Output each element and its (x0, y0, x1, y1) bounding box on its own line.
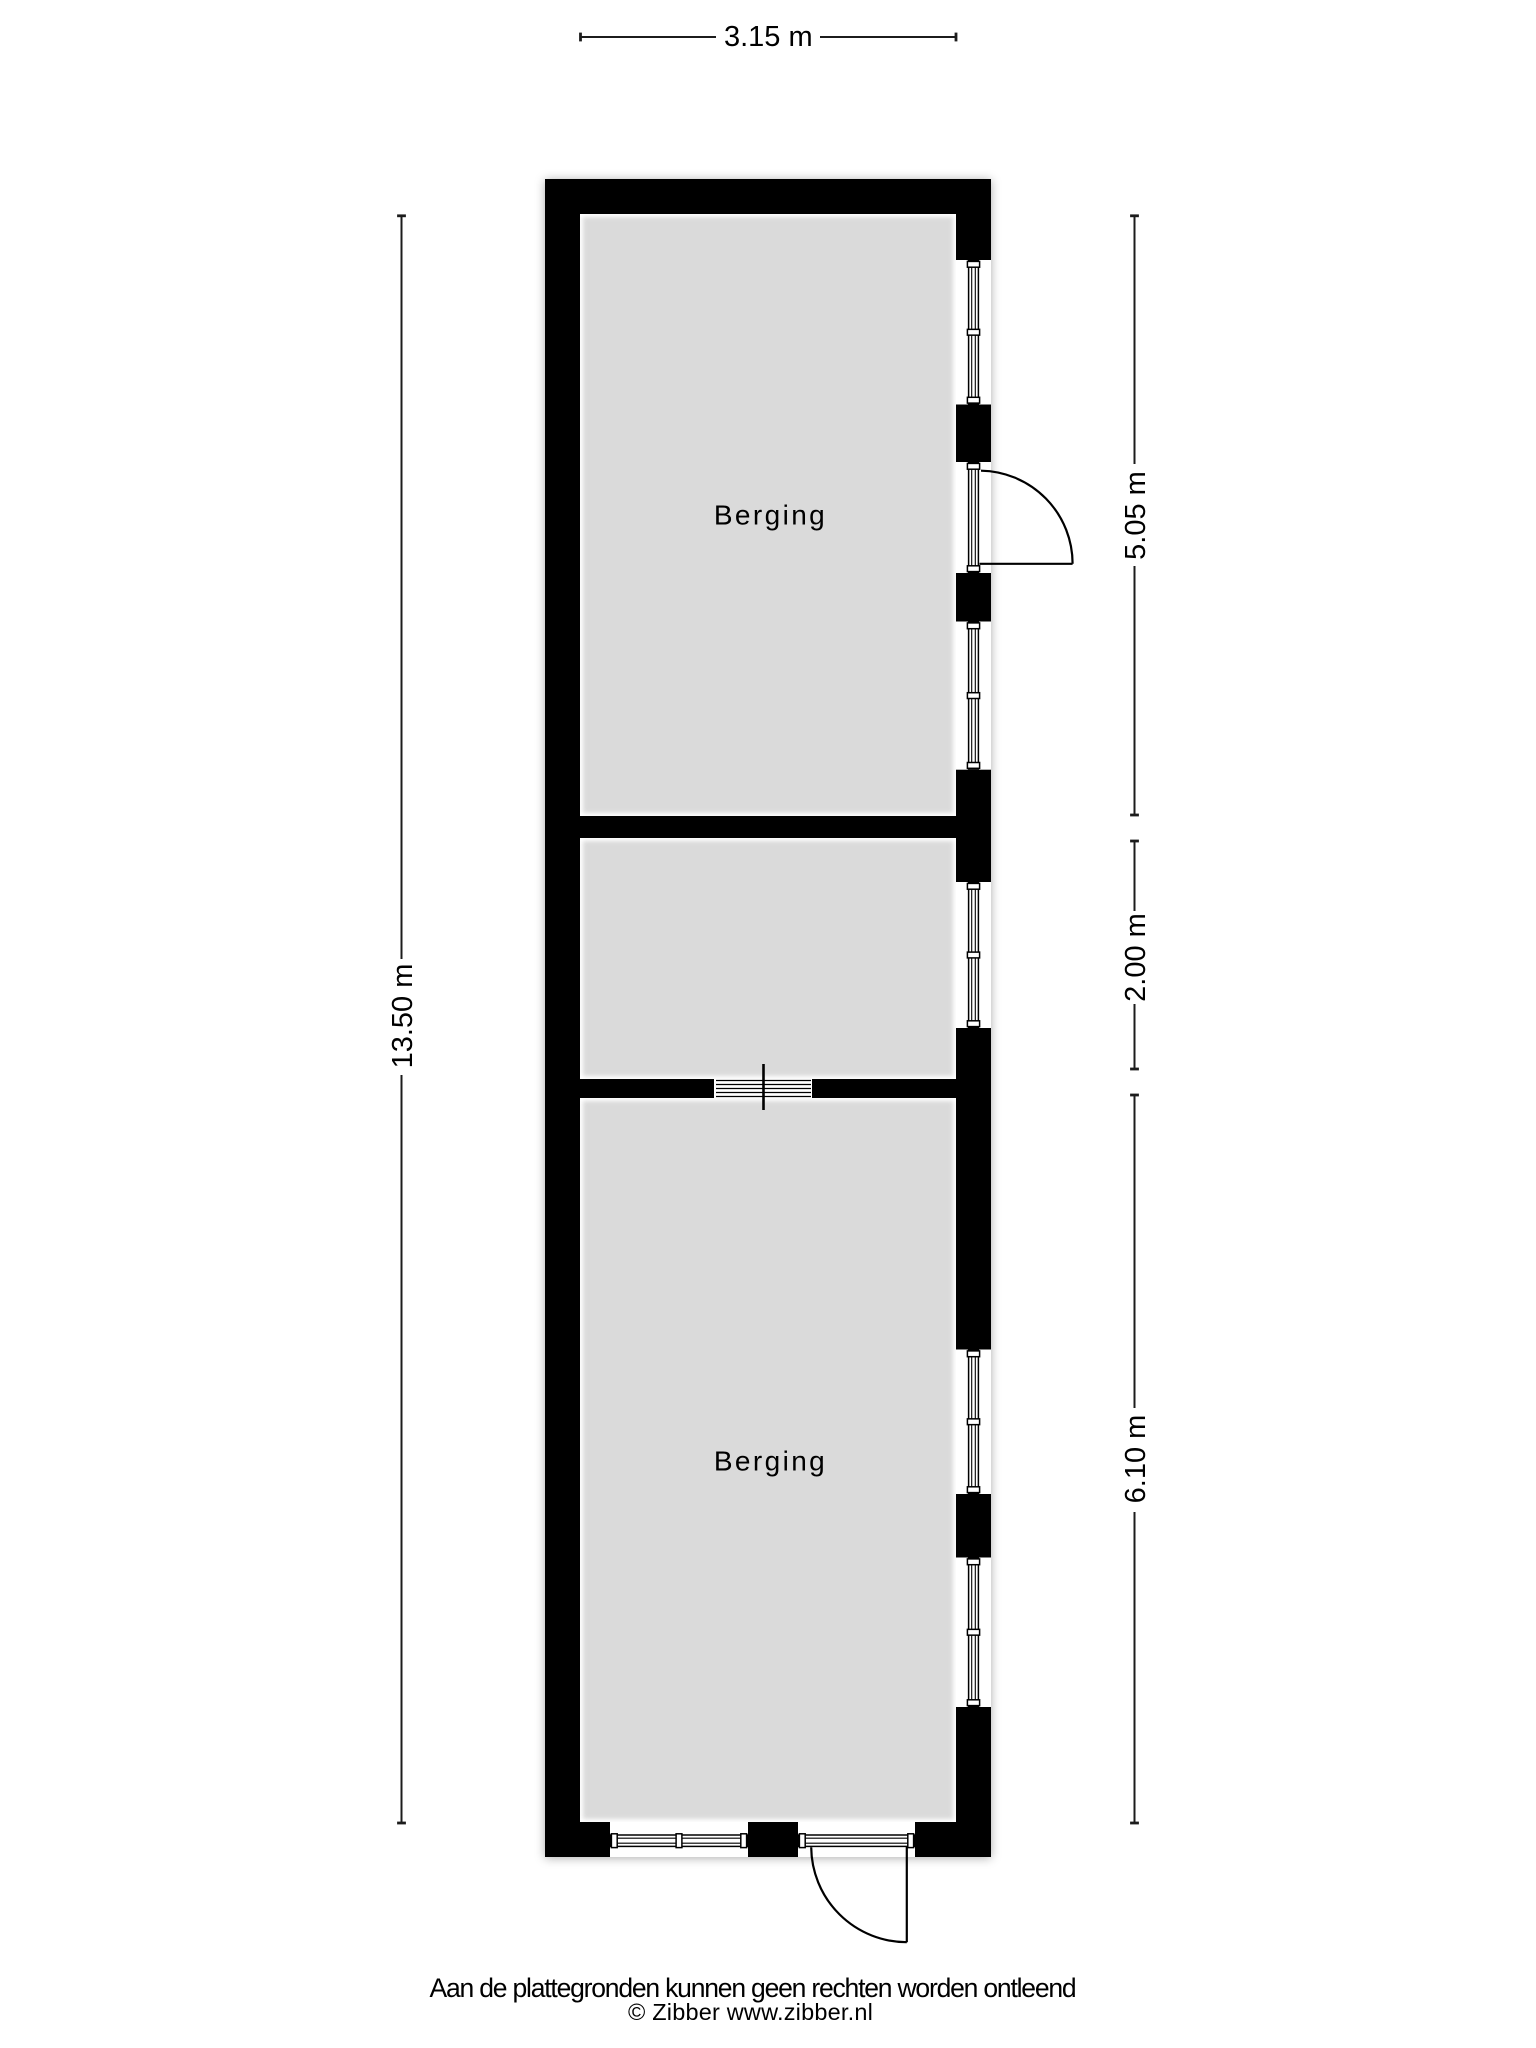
svg-text:6.10 m: 6.10 m (1120, 1415, 1152, 1504)
svg-text:3.15 m: 3.15 m (724, 21, 813, 53)
svg-text:Berging: Berging (714, 500, 827, 531)
svg-text:Berging: Berging (714, 1446, 827, 1477)
svg-text:© Zibber www.zibber.nl: © Zibber www.zibber.nl (628, 1999, 873, 2025)
svg-text:13.50 m: 13.50 m (387, 964, 419, 1069)
svg-text:5.05 m: 5.05 m (1120, 471, 1152, 560)
svg-text:2.00 m: 2.00 m (1120, 913, 1152, 1002)
